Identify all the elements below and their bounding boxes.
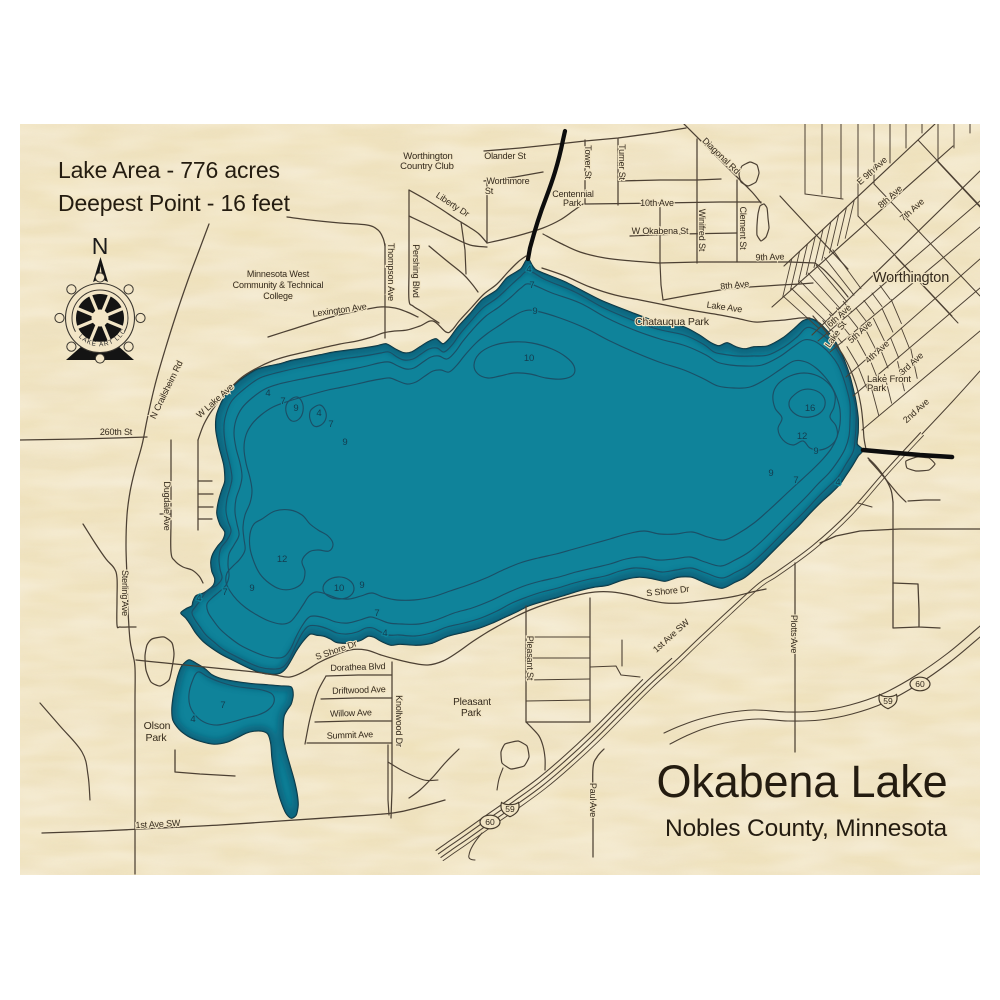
svg-text:Driftwood Ave: Driftwood Ave bbox=[332, 684, 386, 696]
svg-text:Pleasant St: Pleasant St bbox=[525, 636, 535, 681]
svg-text:Olson: Olson bbox=[144, 720, 171, 732]
svg-text:Minnesota West: Minnesota West bbox=[247, 269, 310, 279]
svg-text:Worthmore: Worthmore bbox=[487, 176, 530, 186]
svg-text:10: 10 bbox=[524, 353, 534, 364]
svg-text:Deepest Point - 16 feet: Deepest Point - 16 feet bbox=[58, 190, 291, 216]
svg-text:59: 59 bbox=[505, 804, 515, 814]
svg-text:9: 9 bbox=[359, 580, 364, 591]
svg-text:4: 4 bbox=[526, 264, 531, 275]
svg-text:59: 59 bbox=[883, 696, 893, 706]
svg-text:Sterling Ave: Sterling Ave bbox=[120, 570, 130, 616]
svg-text:College: College bbox=[263, 291, 293, 301]
svg-text:Dorathea Blvd: Dorathea Blvd bbox=[330, 661, 386, 673]
svg-text:12: 12 bbox=[277, 554, 287, 565]
svg-text:Country Club: Country Club bbox=[400, 161, 454, 172]
svg-text:Chatauqua Park: Chatauqua Park bbox=[635, 316, 710, 328]
svg-text:9: 9 bbox=[813, 446, 818, 457]
svg-text:60: 60 bbox=[915, 679, 925, 689]
svg-text:Lake Area - 776 acres: Lake Area - 776 acres bbox=[58, 157, 280, 183]
svg-text:9: 9 bbox=[293, 403, 298, 414]
svg-text:Park: Park bbox=[563, 198, 582, 208]
svg-text:Worthington: Worthington bbox=[873, 270, 949, 286]
svg-text:7: 7 bbox=[220, 700, 225, 711]
svg-text:9th Ave: 9th Ave bbox=[755, 251, 784, 262]
svg-text:Tower St: Tower St bbox=[583, 145, 593, 179]
svg-text:60: 60 bbox=[485, 817, 495, 827]
svg-text:10th Ave: 10th Ave bbox=[640, 198, 674, 208]
svg-text:Park: Park bbox=[146, 732, 168, 744]
svg-text:Knollwood Dr: Knollwood Dr bbox=[394, 695, 404, 747]
svg-text:12: 12 bbox=[797, 431, 807, 442]
svg-text:16: 16 bbox=[805, 403, 815, 414]
svg-text:Dugdale Ave: Dugdale Ave bbox=[162, 481, 172, 530]
svg-text:Paul Ave: Paul Ave bbox=[588, 783, 598, 817]
svg-text:Park: Park bbox=[867, 383, 886, 394]
svg-text:4: 4 bbox=[190, 714, 195, 725]
svg-text:4: 4 bbox=[382, 628, 387, 639]
svg-text:Turner St: Turner St bbox=[617, 144, 627, 180]
svg-text:Park: Park bbox=[461, 708, 482, 719]
svg-text:Pleasant: Pleasant bbox=[453, 697, 491, 708]
svg-text:9: 9 bbox=[532, 306, 537, 317]
svg-text:W Okabena St: W Okabena St bbox=[632, 226, 689, 236]
svg-text:4: 4 bbox=[265, 388, 270, 399]
svg-text:7: 7 bbox=[280, 396, 285, 407]
svg-text:9: 9 bbox=[342, 437, 347, 448]
svg-text:4: 4 bbox=[835, 477, 840, 488]
svg-text:7: 7 bbox=[222, 587, 227, 598]
svg-text:9: 9 bbox=[249, 583, 254, 594]
svg-text:Clement St: Clement St bbox=[738, 206, 748, 250]
svg-text:4: 4 bbox=[316, 408, 321, 419]
svg-text:7: 7 bbox=[793, 475, 798, 486]
svg-text:Nobles County, Minnesota: Nobles County, Minnesota bbox=[665, 815, 947, 842]
svg-text:Pershing Blvd: Pershing Blvd bbox=[411, 244, 421, 298]
svg-text:7: 7 bbox=[328, 419, 333, 430]
svg-text:7: 7 bbox=[529, 280, 534, 291]
svg-text:Olander St: Olander St bbox=[484, 151, 526, 161]
svg-text:9: 9 bbox=[768, 468, 773, 479]
svg-text:Summit Ave: Summit Ave bbox=[327, 729, 374, 741]
svg-text:4: 4 bbox=[196, 593, 201, 604]
svg-text:Willow Ave: Willow Ave bbox=[330, 707, 372, 718]
svg-text:N: N bbox=[92, 233, 109, 259]
svg-text:Okabena Lake: Okabena Lake bbox=[657, 756, 948, 807]
svg-text:Community & Technical: Community & Technical bbox=[233, 280, 324, 290]
svg-text:Plotts Ave: Plotts Ave bbox=[789, 615, 799, 654]
svg-text:Winifred St: Winifred St bbox=[697, 209, 707, 252]
svg-text:7: 7 bbox=[374, 608, 379, 619]
svg-text:10: 10 bbox=[334, 583, 344, 594]
svg-text:260th St: 260th St bbox=[100, 427, 133, 437]
svg-text:Thompson Ave: Thompson Ave bbox=[386, 243, 396, 301]
svg-text:St: St bbox=[485, 186, 494, 196]
